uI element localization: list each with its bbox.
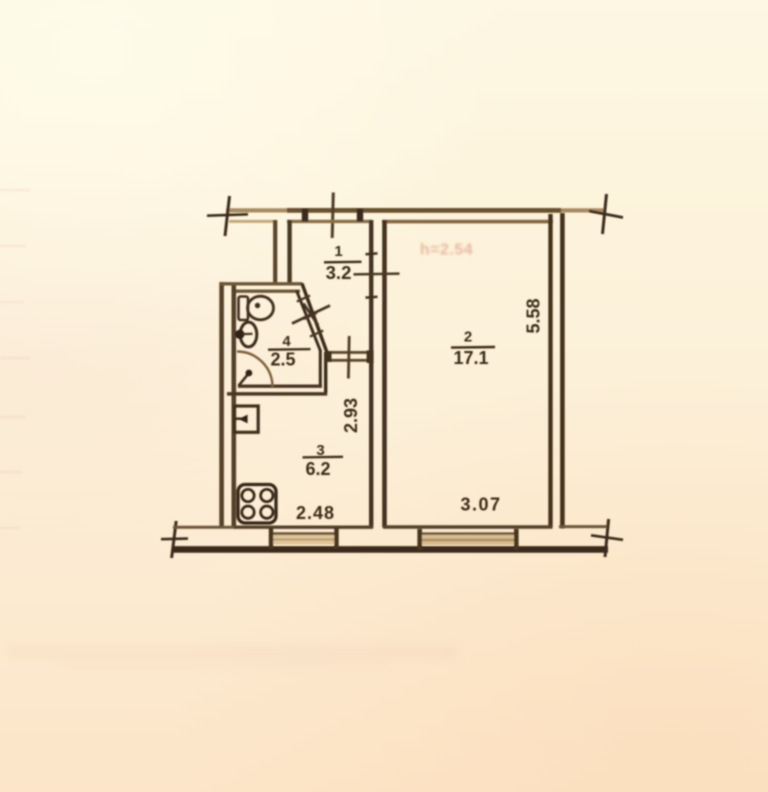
- svg-text:4: 4: [282, 333, 291, 350]
- svg-text:3.2: 3.2: [326, 262, 352, 283]
- svg-text:2: 2: [464, 329, 472, 346]
- svg-text:5.58: 5.58: [524, 298, 544, 333]
- svg-text:3.07: 3.07: [460, 495, 501, 515]
- svg-text:2.5: 2.5: [270, 350, 295, 370]
- svg-text:17.1: 17.1: [453, 348, 488, 368]
- svg-text:6.2: 6.2: [305, 459, 330, 479]
- svg-text:2.48: 2.48: [296, 503, 335, 523]
- svg-text:h=2.54: h=2.54: [420, 242, 473, 259]
- svg-text:1: 1: [334, 243, 342, 260]
- svg-text:2.93: 2.93: [341, 398, 361, 433]
